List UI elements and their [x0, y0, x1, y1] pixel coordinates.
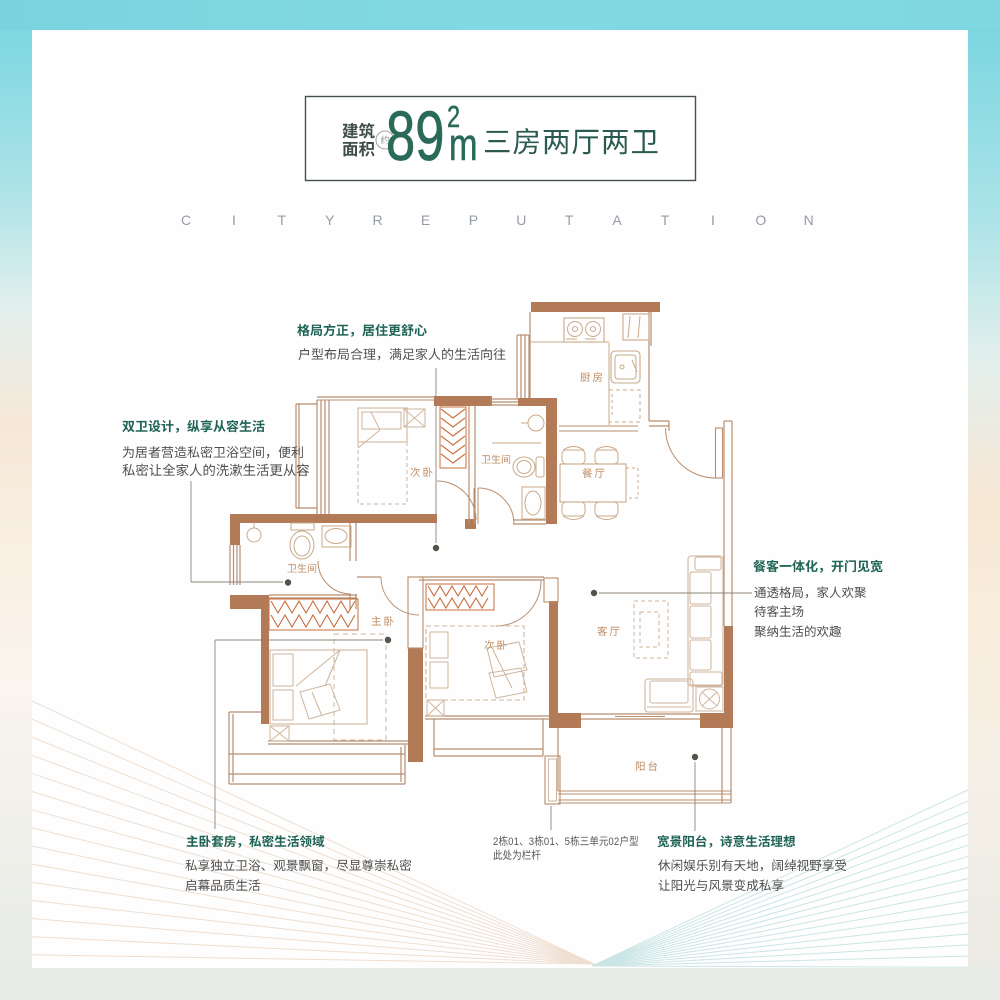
svg-text:I: I [711, 212, 715, 228]
svg-text:T: T [565, 212, 574, 228]
svg-text:N: N [804, 212, 814, 228]
svg-text:A: A [612, 212, 622, 228]
svg-text:89: 89 [386, 98, 444, 176]
svg-text:T: T [278, 212, 287, 228]
svg-text:P: P [469, 212, 478, 228]
svg-text:I: I [232, 212, 236, 228]
svg-text:T: T [661, 212, 670, 228]
svg-text:Y: Y [325, 212, 335, 228]
svg-text:U: U [516, 212, 526, 228]
svg-text:R: R [373, 212, 383, 228]
svg-text:2: 2 [447, 99, 460, 134]
svg-text:O: O [755, 212, 766, 228]
svg-text:C: C [181, 212, 191, 228]
svg-text:E: E [421, 212, 430, 228]
